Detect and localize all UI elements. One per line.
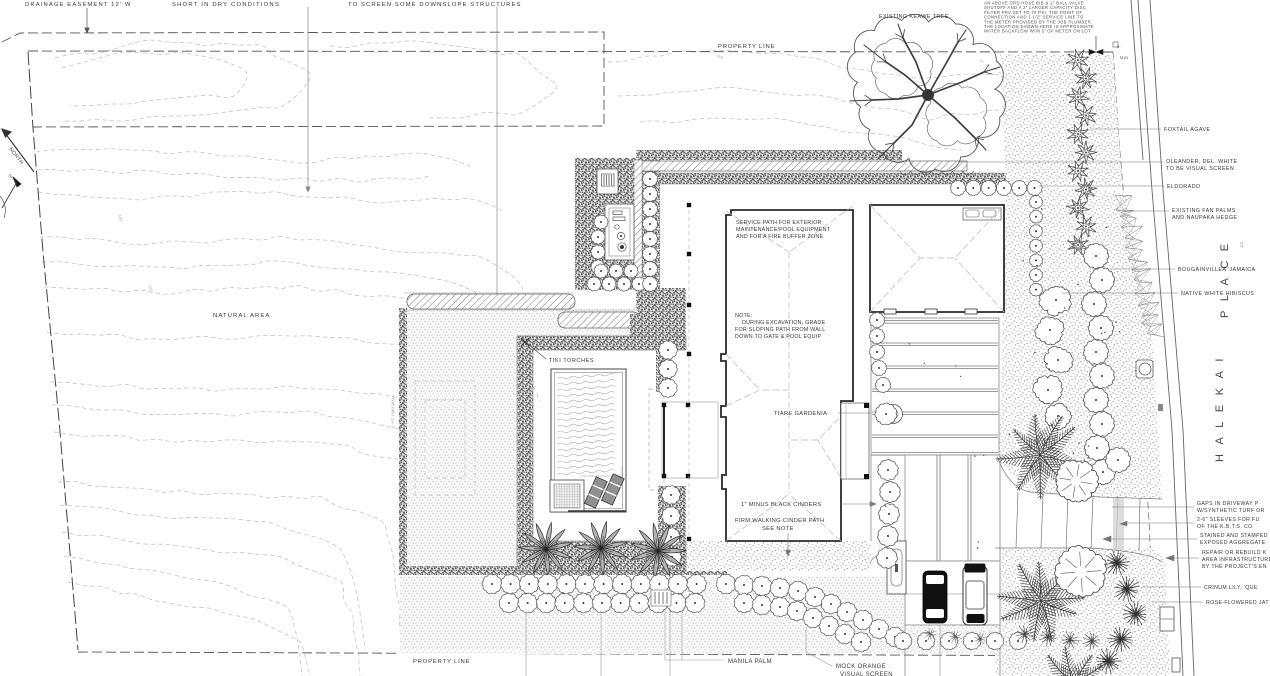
svg-text:VISUAL SCREEN: VISUAL SCREEN (840, 672, 893, 676)
svg-text:PLACE: PLACE (1219, 234, 1231, 318)
svg-text:SERVICE PATH FOR EXTERIOR: SERVICE PATH FOR EXTERIOR (736, 220, 822, 226)
svg-text:MANILA PALM: MANILA PALM (728, 659, 772, 665)
svg-text:TIKI TORCHES: TIKI TORCHES (549, 358, 594, 364)
svg-text:DOWN TO GATE & POOL EQUIP: DOWN TO GATE & POOL EQUIP (735, 334, 821, 340)
svg-text:TIARE GARDENIA: TIARE GARDENIA (774, 411, 827, 417)
svg-text:BY THE PROJECT'S EN: BY THE PROJECT'S EN (1202, 564, 1267, 570)
svg-text:EXPOSED AGGREGATE: EXPOSED AGGREGATE (1200, 540, 1266, 546)
svg-text:DRAINAGE EASEMENT 12' W: DRAINAGE EASEMENT 12' W (25, 2, 132, 8)
svg-text:CRINUM LILY, 'QUE: CRINUM LILY, 'QUE (1204, 585, 1258, 591)
svg-text:MIN: MIN (1120, 55, 1129, 60)
svg-text:NATIVE WHITE HIBISCUS: NATIVE WHITE HIBISCUS (1181, 291, 1254, 297)
svg-text:TO SCREEN SOME DOWNSLOPE STRUC: TO SCREEN SOME DOWNSLOPE STRUCTURES (348, 2, 522, 8)
svg-text:PROPERTY LINE: PROPERTY LINE (413, 659, 470, 665)
svg-text:TO BE VISUAL SCREEN: TO BE VISUAL SCREEN (1166, 166, 1234, 172)
svg-text:W/SYNTHETIC TURF OR: W/SYNTHETIC TURF OR (1197, 508, 1265, 514)
svg-text:FOXTAIL AGAVE: FOXTAIL AGAVE (1164, 127, 1210, 133)
svg-text:4' HT. CMU WALL: 4' HT. CMU WALL (391, 394, 395, 428)
svg-text:MOCK ORANGE: MOCK ORANGE (836, 664, 886, 670)
svg-text:MAINTENANCE/POOL EQUIPMENT: MAINTENANCE/POOL EQUIPMENT (736, 227, 831, 233)
svg-text:HALEKAI: HALEKAI (1214, 349, 1226, 462)
svg-text:FIRM WALKING CINDER PATH: FIRM WALKING CINDER PATH (735, 518, 825, 524)
svg-text:2-6" SLEEVES FOR FU: 2-6" SLEEVES FOR FU (1197, 517, 1260, 523)
svg-text:OF THE K.B.T.S. CO: OF THE K.B.T.S. CO (1197, 524, 1253, 530)
svg-text:NATURAL AREA: NATURAL AREA (213, 313, 270, 319)
svg-text:SEE NOTE: SEE NOTE (762, 526, 794, 532)
svg-text:SHORT IN DRY CONDITIONS: SHORT IN DRY CONDITIONS (172, 2, 280, 8)
svg-text:AREA INFRASTRUCTURE: AREA INFRASTRUCTURE (1202, 557, 1270, 563)
svg-text:EXISTING FAN PALMS: EXISTING FAN PALMS (1172, 208, 1236, 214)
svg-text:BOUGAINVILLEA 'JAMAICA: BOUGAINVILLEA 'JAMAICA (1178, 267, 1256, 273)
svg-text:5': 5' (1117, 44, 1121, 49)
svg-text:AND FOR A FIRE BUFFER ZONE: AND FOR A FIRE BUFFER ZONE (736, 234, 823, 240)
svg-text:NOTE:: NOTE: (735, 313, 752, 319)
svg-text:ROSE-FLOWERED JAT: ROSE-FLOWERED JAT (1206, 600, 1269, 606)
svg-text:WATER BACKFLOW W/IN 5' OF METE: WATER BACKFLOW W/IN 5' OF METER ON LOT (984, 29, 1091, 34)
svg-text:DURING EXCAVATION, GRADE: DURING EXCAVATION, GRADE (742, 320, 825, 326)
svg-text:STAINED AND STAMPED: STAINED AND STAMPED (1200, 533, 1268, 539)
svg-text:OLEANDER, DEL. WHITE: OLEANDER, DEL. WHITE (1166, 159, 1238, 165)
svg-text:AND NAUPAKA HEDGE: AND NAUPAKA HEDGE (1172, 215, 1237, 221)
svg-text:PROPERTY LINE: PROPERTY LINE (718, 44, 775, 50)
svg-text:FOR SLOPING PATH FROM WALL: FOR SLOPING PATH FROM WALL (735, 327, 825, 333)
svg-text:1" MINUS BLACK CINDERS: 1" MINUS BLACK CINDERS (741, 502, 822, 508)
svg-text:REPAIR OR REBUILD K: REPAIR OR REBUILD K (1202, 550, 1267, 556)
svg-text:ELDORADO: ELDORADO (1167, 184, 1200, 190)
svg-text:GAPS IN DRIVEWAY P: GAPS IN DRIVEWAY P (1197, 501, 1259, 507)
svg-text:EXISTING KEAWE TREE: EXISTING KEAWE TREE (879, 14, 949, 20)
svg-text:115: 115 (1239, 241, 1244, 248)
